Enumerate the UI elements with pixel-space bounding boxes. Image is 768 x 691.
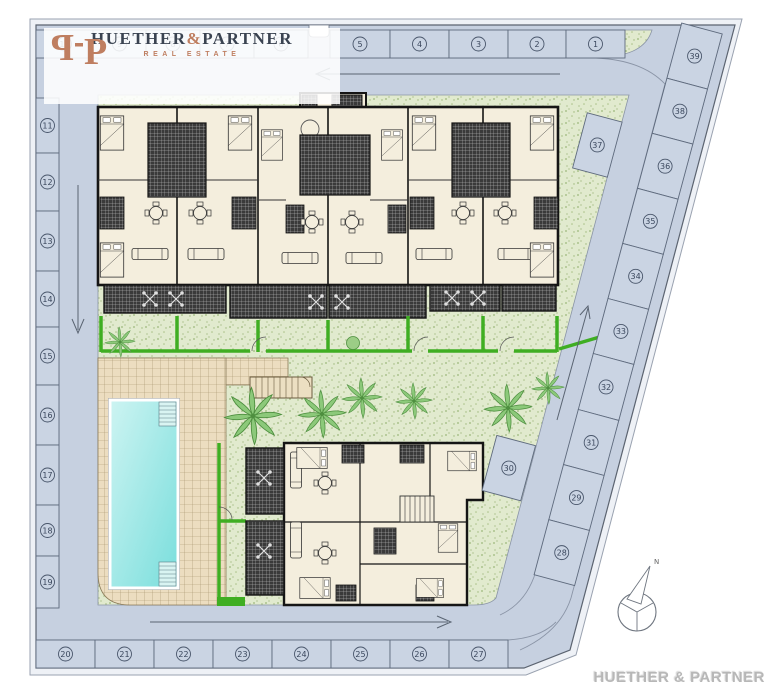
parking-stall-number: 35 <box>645 217 655 226</box>
parking-stall: 1 <box>566 30 625 58</box>
parking-stall-number: 31 <box>586 438 596 447</box>
parking-stall: 14 <box>36 271 59 327</box>
stair-core <box>300 135 370 195</box>
parking-stall-number: 19 <box>42 578 52 587</box>
parking-stall-number: 23 <box>237 650 247 659</box>
parking-stall: 13 <box>36 211 59 271</box>
parking-stall-number: 22 <box>178 650 188 659</box>
parking-stall-number: 13 <box>42 237 52 246</box>
parking-stall-number: 15 <box>42 352 52 361</box>
parking-stall-number: 1 <box>593 40 598 49</box>
stairwell <box>400 496 434 522</box>
parking-stall: 15 <box>36 327 59 385</box>
parking-stall: 3 <box>449 30 508 58</box>
terrace <box>246 521 284 595</box>
parking-stall: 16 <box>36 385 59 445</box>
parking-stall: 26 <box>390 640 449 668</box>
parking-stall-number: 20 <box>60 650 70 659</box>
parking-stall-number: 11 <box>42 121 52 130</box>
parking-stall-number: 2 <box>534 40 539 49</box>
parking-stall-number: 27 <box>473 650 483 659</box>
upper-building <box>98 93 558 318</box>
logo-title: HUETHER&PARTNER <box>91 30 293 47</box>
parking-stall: 20 <box>36 640 95 668</box>
logo-monogram-dash <box>75 43 83 47</box>
lower-building <box>246 443 483 605</box>
parking-stall-number: 33 <box>616 327 626 336</box>
parking-stall: 23 <box>213 640 272 668</box>
parking-stall-number: 4 <box>417 40 422 49</box>
parking-stall-number: 37 <box>592 141 602 150</box>
parking-stall: 18 <box>36 505 59 556</box>
parking-stall: 12 <box>36 153 59 211</box>
parking-stall: 22 <box>154 640 213 668</box>
parking-stall-number: 28 <box>557 548 567 557</box>
parking-stall-number: 34 <box>631 272 641 281</box>
parking-stall-number: 38 <box>675 107 685 116</box>
parking-stall: 21 <box>95 640 154 668</box>
parking-stall-number: 24 <box>296 650 306 659</box>
parking-stall-number: 18 <box>42 526 52 535</box>
parking-stall: 2 <box>508 30 566 58</box>
parking-stall: 25 <box>331 640 390 668</box>
swimming-pool <box>109 399 180 590</box>
parking-stall-number: 16 <box>42 411 52 420</box>
parking-stall: 19 <box>36 556 59 608</box>
compass-needle <box>627 566 650 604</box>
parking-stall: 11 <box>36 98 59 153</box>
parking-stall-number: 39 <box>689 52 699 61</box>
garden-stairs <box>250 377 312 398</box>
parking-stall-number: 36 <box>660 162 670 171</box>
parking-stall-number: 32 <box>601 383 611 392</box>
parking-stall-number: 26 <box>414 650 424 659</box>
logo-card: P P HUETHER&PARTNER REAL ESTATE <box>44 28 340 104</box>
parking-stall: 24 <box>272 640 331 668</box>
watermark-text: HUETHER & PARTNER <box>593 669 765 686</box>
parking-stall: 4 <box>390 30 449 58</box>
logo-ampersand: & <box>187 29 203 48</box>
parking-stall-number: 30 <box>504 464 514 473</box>
parking-stall-number: 3 <box>476 40 481 49</box>
parking-stall-number: 21 <box>119 650 129 659</box>
parking-stall: 17 <box>36 445 59 505</box>
logo-monogram-letter-right: P <box>84 31 107 68</box>
stair-core <box>148 123 206 197</box>
parking-stall-number: 25 <box>355 650 365 659</box>
parking-stall: 27 <box>449 640 508 668</box>
parking-stall-number: 12 <box>42 178 52 187</box>
stair-core <box>452 123 510 197</box>
parking-stall-number: 17 <box>42 471 52 480</box>
parking-stall-number: 5 <box>357 40 362 49</box>
compass-north-label: N <box>654 558 659 566</box>
terrace <box>246 448 284 514</box>
logo-name-right: PARTNER <box>202 29 293 48</box>
site-plan-canvas: 1098765432111121314151617181920212223242… <box>0 0 768 691</box>
parking-stall-number: 14 <box>42 295 52 304</box>
parking-stall-number: 29 <box>571 493 581 502</box>
compass: N <box>618 558 659 631</box>
logo-monogram-letter-left: P <box>51 28 74 68</box>
logo-monogram: P P <box>44 28 116 68</box>
bush <box>347 337 360 350</box>
pool-steps-bottom <box>159 562 176 586</box>
pool-steps-top <box>159 402 176 426</box>
logo-tagline: REAL ESTATE <box>144 51 241 58</box>
